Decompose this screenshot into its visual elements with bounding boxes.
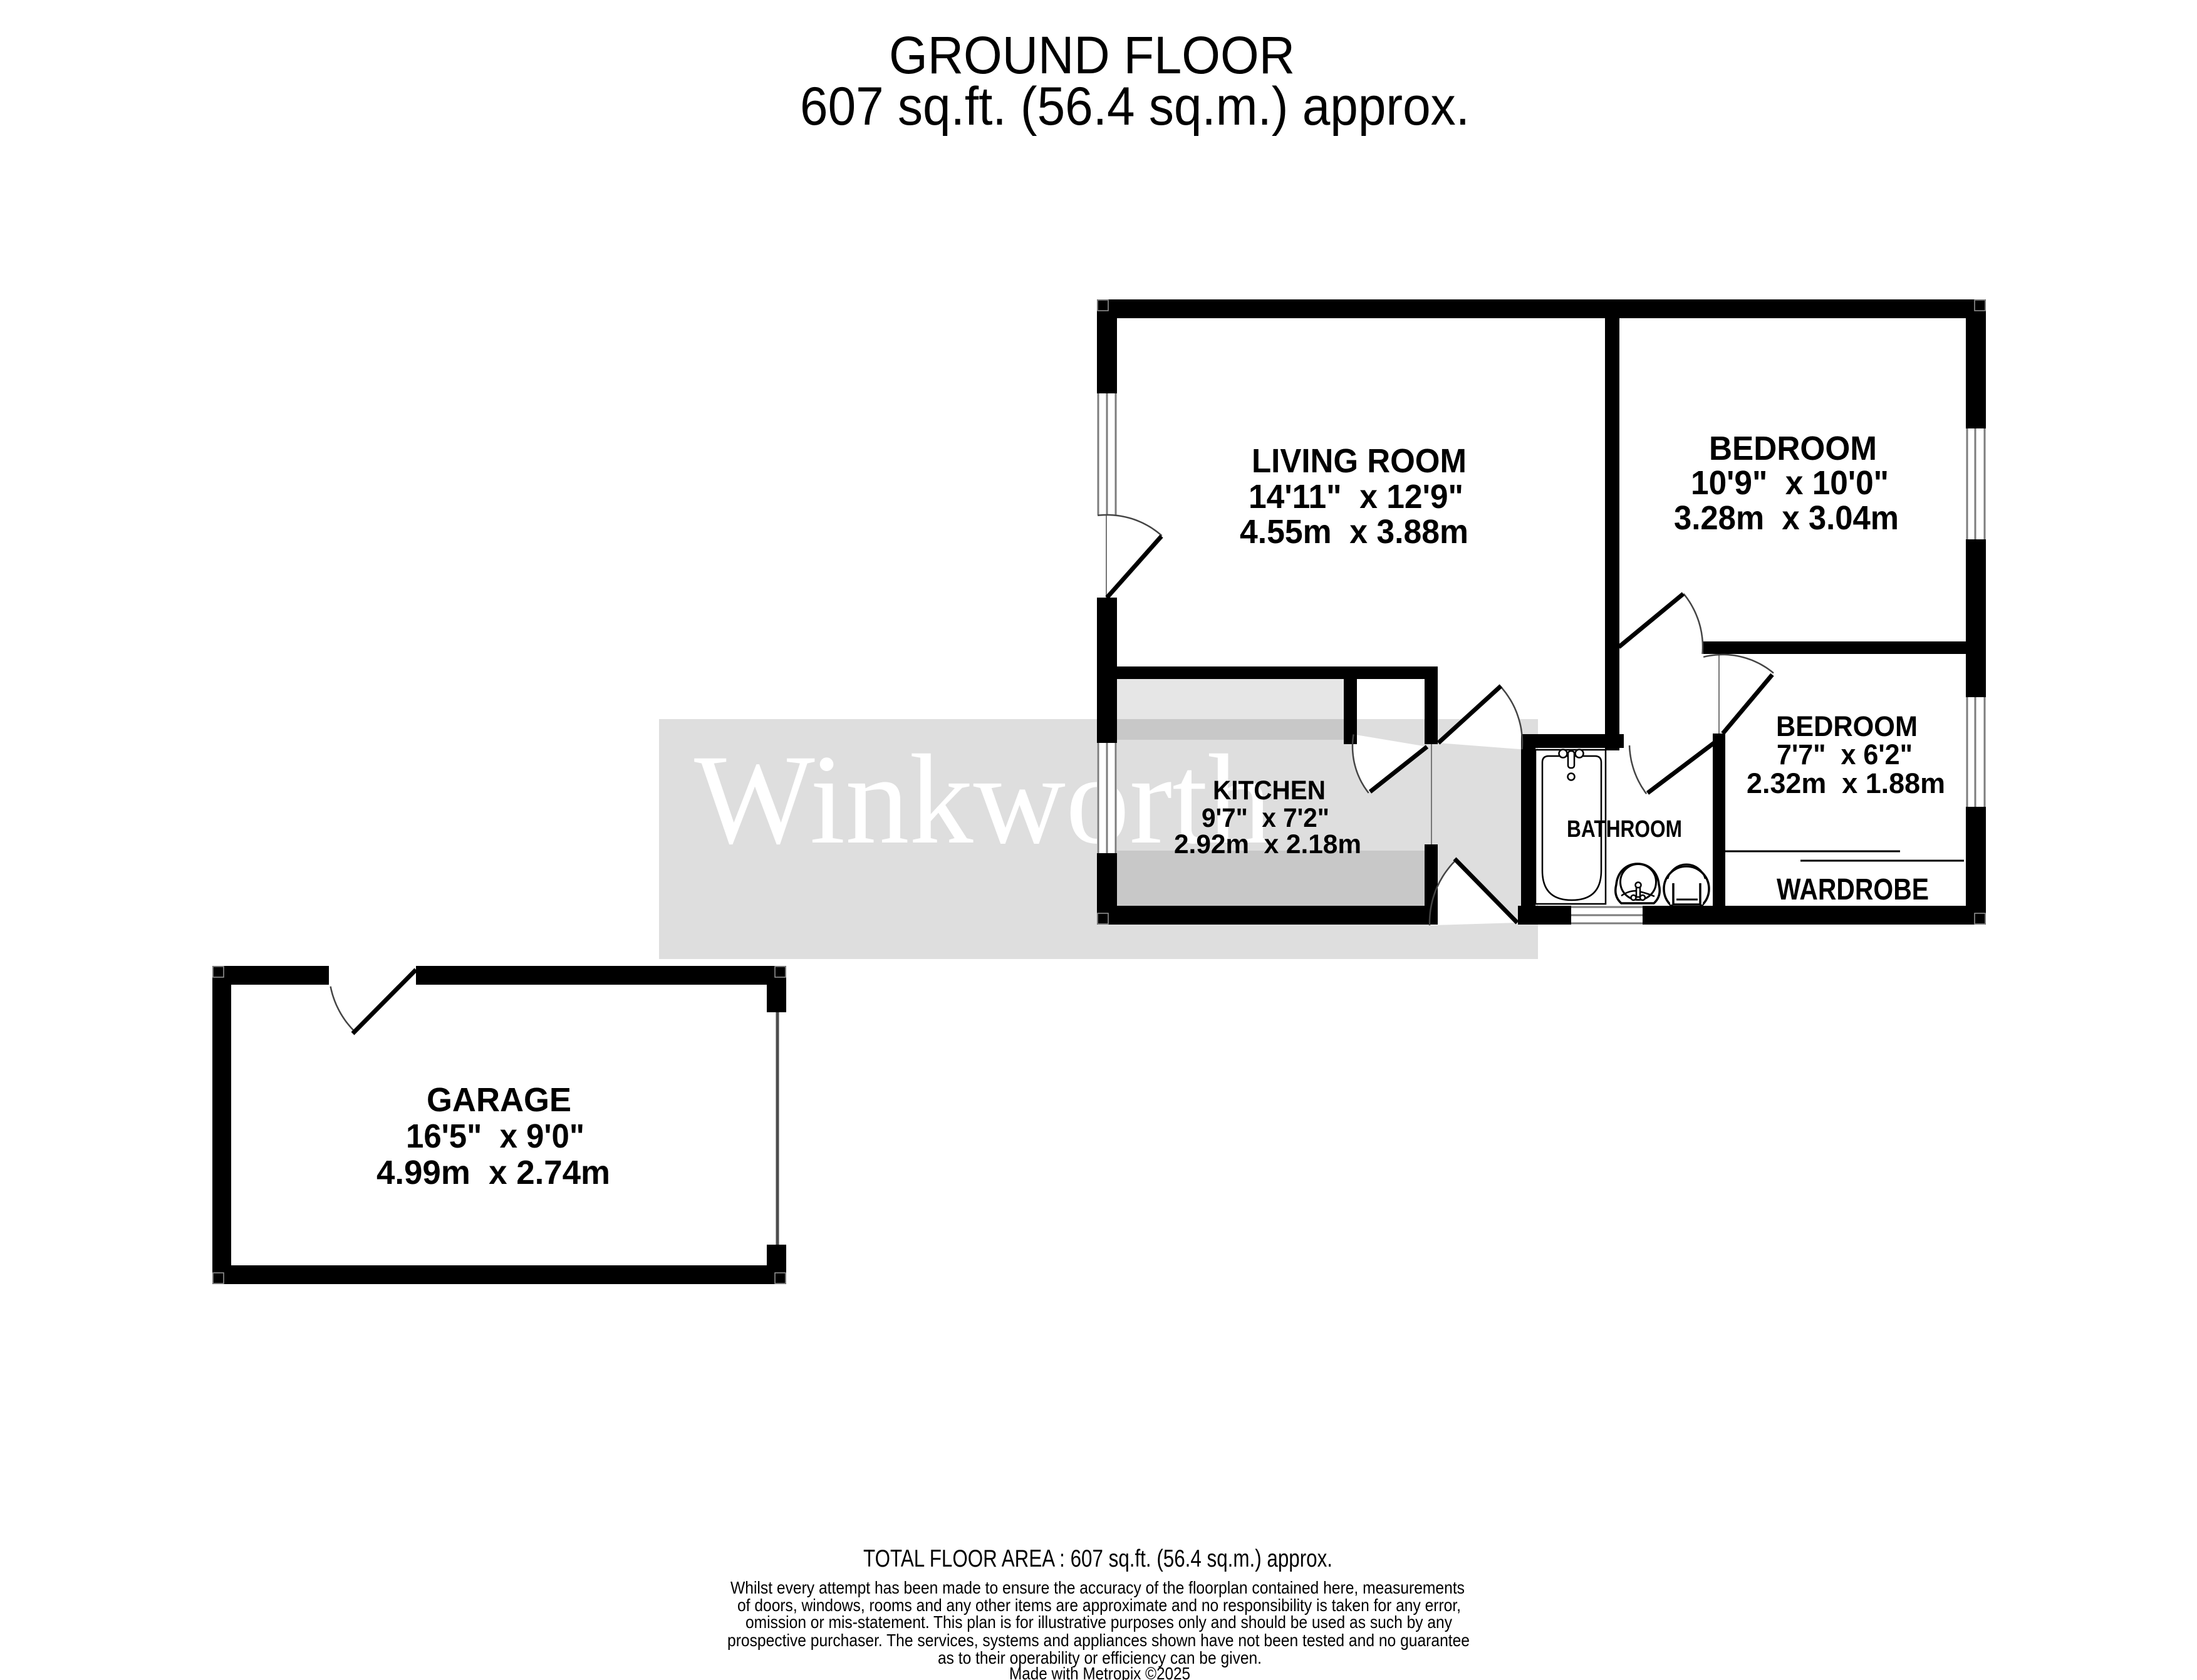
svg-text:607 sq.ft. (56.4 sq.m.) approx: 607 sq.ft. (56.4 sq.m.) approx. xyxy=(800,76,1470,137)
svg-text:BEDROOM: BEDROOM xyxy=(1709,430,1877,467)
svg-text:9'7" x 7'2": 9'7" x 7'2" xyxy=(1202,804,1329,833)
svg-text:10'9" x 10'0": 10'9" x 10'0" xyxy=(1691,464,1889,502)
svg-text:16'5" x 9'0": 16'5" x 9'0" xyxy=(406,1117,584,1155)
svg-text:KITCHEN: KITCHEN xyxy=(1213,776,1326,806)
svg-text:2.32m x 1.88m: 2.32m x 1.88m xyxy=(1747,767,1945,799)
svg-text:WARDROBE: WARDROBE xyxy=(1777,873,1929,906)
svg-text:3.28m x 3.04m: 3.28m x 3.04m xyxy=(1674,499,1899,537)
svg-text:Whilst every attempt has been: Whilst every attempt has been made to en… xyxy=(730,1578,1465,1597)
svg-text:BEDROOM: BEDROOM xyxy=(1776,710,1918,742)
svg-text:GARAGE: GARAGE xyxy=(427,1081,571,1119)
svg-text:2.92m x 2.18m: 2.92m x 2.18m xyxy=(1174,830,1361,859)
svg-text:prospective purchaser. The ser: prospective purchaser. The services, sys… xyxy=(727,1631,1470,1650)
svg-text:GROUND FLOOR: GROUND FLOOR xyxy=(889,26,1295,85)
svg-text:omission or mis-statement. Thi: omission or mis-statement. This plan is … xyxy=(745,1612,1452,1632)
svg-text:4.99m x 2.74m: 4.99m x 2.74m xyxy=(377,1154,610,1191)
svg-text:14'11" x 12'9": 14'11" x 12'9" xyxy=(1249,478,1463,516)
svg-text:Made with Metropix ©2025: Made with Metropix ©2025 xyxy=(1009,1664,1190,1680)
svg-text:TOTAL FLOOR AREA : 607 sq.ft.: TOTAL FLOOR AREA : 607 sq.ft. (56.4 sq.m… xyxy=(863,1545,1332,1572)
svg-text:BATHROOM: BATHROOM xyxy=(1567,816,1682,843)
svg-text:7'7" x 6'2": 7'7" x 6'2" xyxy=(1777,739,1913,770)
svg-text:LIVING ROOM: LIVING ROOM xyxy=(1252,442,1467,480)
svg-text:4.55m x 3.88m: 4.55m x 3.88m xyxy=(1240,513,1468,551)
